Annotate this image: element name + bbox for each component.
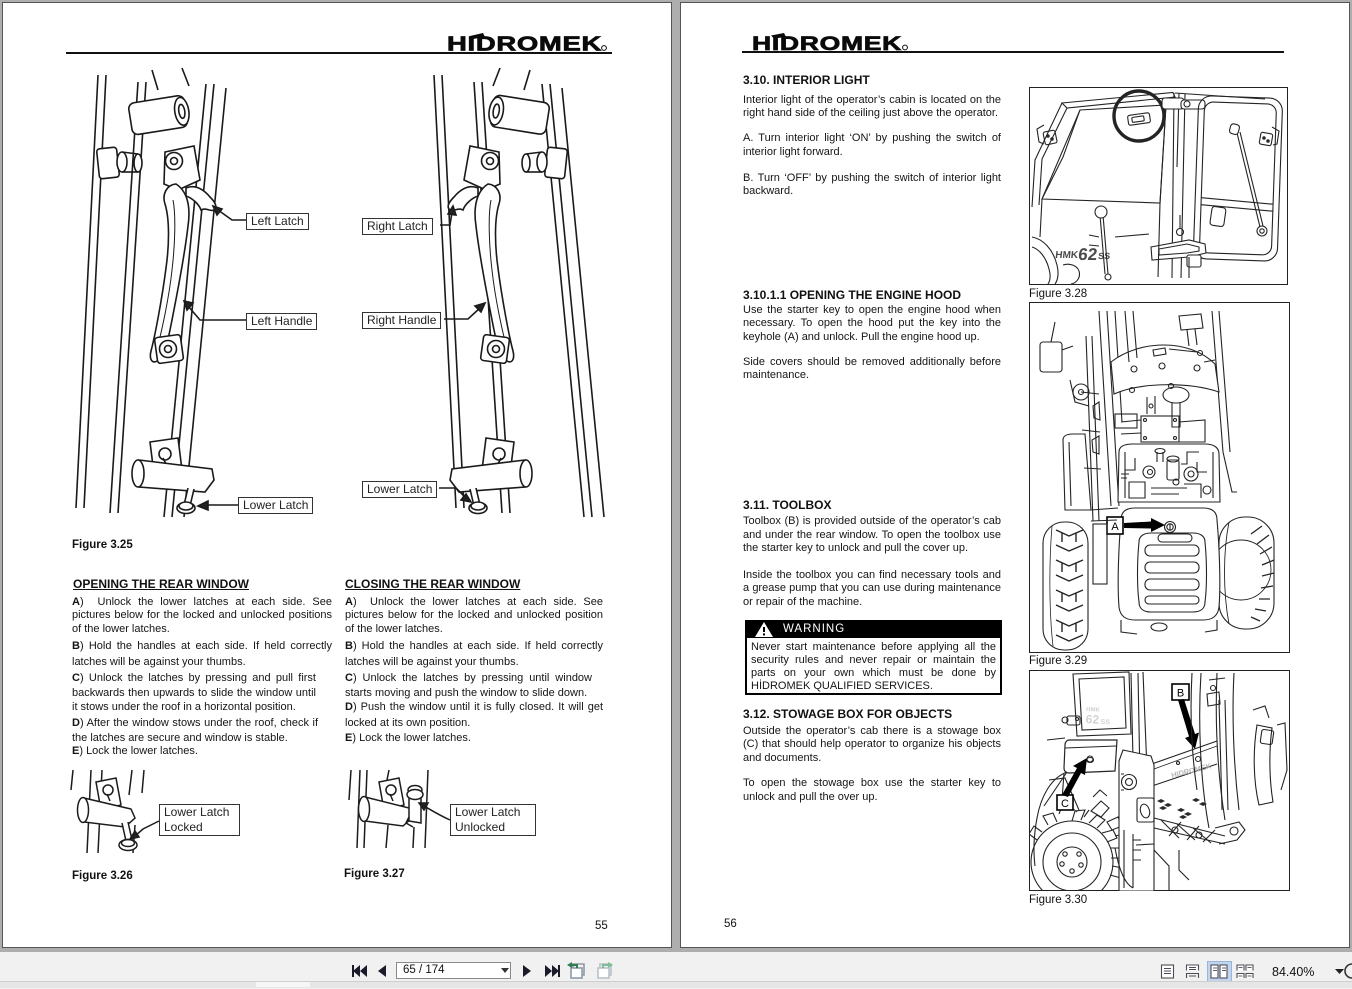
svg-text:B: B <box>1177 688 1184 700</box>
svg-text:62: 62 <box>1085 712 1099 727</box>
svg-text:62: 62 <box>1077 245 1098 264</box>
svg-text:HMK: HMK <box>1055 250 1080 261</box>
svg-text:C: C <box>1061 798 1069 810</box>
svg-text:SS: SS <box>1100 719 1110 726</box>
svg-text:A: A <box>1111 521 1119 533</box>
